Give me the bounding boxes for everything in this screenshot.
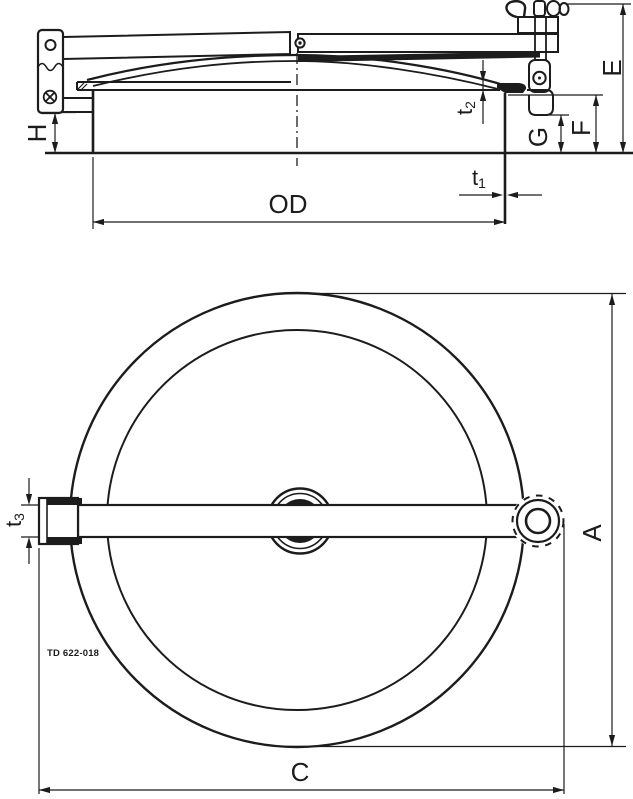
dim-t3-arrow-down bbox=[26, 494, 32, 505]
end-cap-lip-bottom bbox=[47, 537, 82, 544]
dim-t1: t1 bbox=[459, 165, 542, 199]
label-c: C bbox=[291, 757, 310, 787]
crossbar bbox=[78, 505, 530, 537]
dim-h-arrow-bottom bbox=[52, 142, 58, 153]
label-t3: t3 bbox=[1, 513, 28, 527]
dim-a-arrow-top bbox=[609, 294, 615, 305]
wing-handle bbox=[506, 1, 525, 17]
label-f: F bbox=[566, 120, 596, 136]
dim-t1-arrow-left bbox=[492, 192, 503, 198]
dim-g-arrow-top bbox=[558, 115, 564, 126]
label-h: H bbox=[22, 124, 52, 143]
label-t1: t1 bbox=[472, 165, 486, 192]
dim-f-arrow-top bbox=[593, 95, 599, 106]
label-e: E bbox=[597, 59, 627, 76]
dim-h: H bbox=[22, 113, 76, 154]
flange-hatch bbox=[78, 83, 87, 90]
dim-t3: t3 bbox=[1, 478, 39, 564]
dim-f-arrow-bottom bbox=[593, 142, 599, 153]
dim-g: G bbox=[523, 115, 569, 153]
clamp-bridge bbox=[518, 17, 558, 33]
label-a: A bbox=[577, 524, 607, 542]
swing-arm-right bbox=[298, 34, 558, 52]
clamp-hook bbox=[527, 90, 553, 115]
dim-e-arrow-top bbox=[620, 4, 626, 15]
bolt-hanger-eye-dot bbox=[538, 77, 541, 80]
dim-g-arrow-bottom bbox=[558, 142, 564, 153]
wing-nut-lobe-1 bbox=[547, 1, 560, 16]
dim-e-arrow-bottom bbox=[620, 142, 626, 153]
dim-c-arrow-left bbox=[39, 787, 50, 793]
manhole-technical-drawing: E F G H t2 t1 OD bbox=[0, 0, 633, 799]
end-cap-lip-top bbox=[47, 498, 82, 505]
dim-a-arrow-bottom bbox=[609, 735, 615, 746]
label-g: G bbox=[523, 127, 553, 147]
dim-t1-arrow-right bbox=[507, 192, 518, 198]
rim-seal bbox=[497, 83, 526, 93]
label-od: OD bbox=[269, 189, 308, 219]
dim-od-arrow-right bbox=[494, 219, 505, 225]
swing-arm-left bbox=[63, 32, 290, 59]
knob-center bbox=[526, 509, 550, 533]
drawing-canvas: E F G H t2 t1 OD bbox=[0, 0, 633, 799]
dim-h-arrow-top bbox=[52, 113, 58, 124]
arm-junction-pin-dot bbox=[298, 41, 301, 44]
dim-t3-arrow-up bbox=[26, 537, 32, 548]
plan-view: TD 622-018 bbox=[39, 293, 565, 747]
dim-t2: t2 bbox=[452, 60, 487, 124]
wing-nut-post bbox=[534, 1, 545, 16]
label-t2: t2 bbox=[452, 101, 479, 115]
clamp-bar bbox=[298, 52, 540, 63]
side-view bbox=[38, 1, 633, 224]
dim-t2-arrow-up bbox=[480, 90, 486, 101]
dim-od-arrow-left bbox=[93, 219, 104, 225]
dim-od: OD bbox=[93, 157, 505, 229]
dim-c-arrow-right bbox=[553, 787, 564, 793]
drawing-number: TD 622-018 bbox=[47, 648, 99, 659]
